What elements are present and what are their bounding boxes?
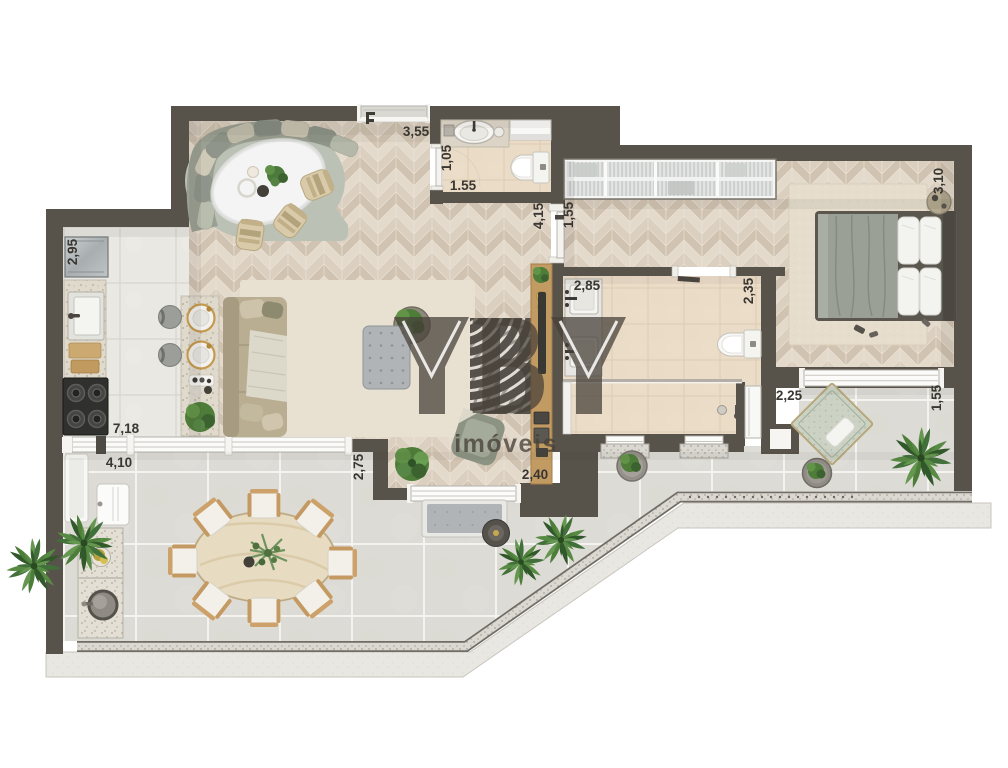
svg-text:2,35: 2,35 [741, 277, 756, 304]
svg-text:2,25: 2,25 [776, 388, 803, 403]
svg-text:1,55: 1,55 [929, 384, 944, 411]
svg-text:4,10: 4,10 [106, 455, 132, 470]
svg-text:1.55: 1.55 [450, 178, 477, 193]
svg-text:imóveis: imóveis [454, 430, 558, 458]
svg-text:2,75: 2,75 [351, 453, 366, 480]
svg-text:7,18: 7,18 [113, 421, 140, 436]
svg-text:4,15: 4,15 [531, 202, 546, 229]
svg-text:2,85: 2,85 [574, 278, 601, 293]
svg-text:B: B [471, 285, 547, 445]
svg-text:1,55: 1,55 [561, 201, 576, 228]
svg-text:2,95: 2,95 [65, 238, 80, 265]
svg-text:1,05: 1,05 [439, 144, 454, 171]
svg-text:2,40: 2,40 [522, 467, 548, 482]
svg-text:3,10: 3,10 [931, 168, 946, 194]
svg-text:3,55: 3,55 [403, 124, 430, 139]
